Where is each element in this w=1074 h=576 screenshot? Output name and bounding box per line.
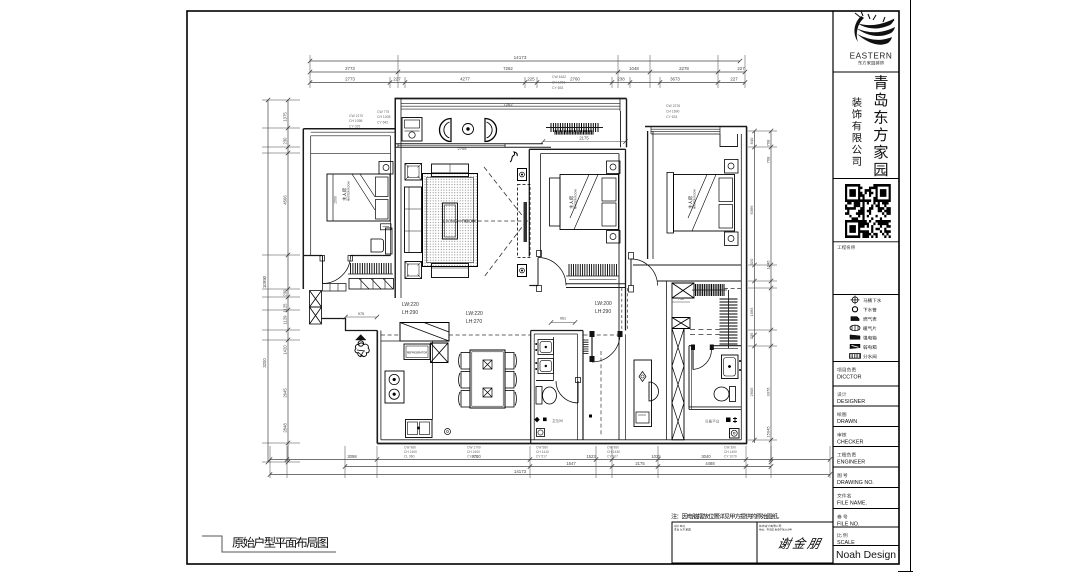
svg-text:14173: 14173 <box>514 469 527 474</box>
svg-text:CY 517: CY 517 <box>536 455 547 459</box>
svg-text:4566: 4566 <box>283 195 288 205</box>
svg-text:LH:270: LH:270 <box>466 319 482 325</box>
svg-text:3376: 3376 <box>766 387 771 397</box>
svg-text:2175: 2175 <box>635 461 645 466</box>
svg-text:LH:290: LH:290 <box>595 309 611 315</box>
svg-text:230: 230 <box>283 137 288 145</box>
svg-text:225: 225 <box>527 77 535 82</box>
svg-text:DRAWING NO.: DRAWING NO. <box>837 480 874 486</box>
svg-text:227: 227 <box>393 77 401 82</box>
svg-text:335: 335 <box>749 332 754 339</box>
svg-text:1565: 1565 <box>749 307 754 317</box>
svg-text:DESIGNER: DESIGNER <box>837 399 865 405</box>
svg-text:CW 390: CW 390 <box>724 446 736 450</box>
svg-text:14173: 14173 <box>514 55 527 60</box>
svg-text:238: 238 <box>617 77 625 82</box>
svg-text:LW:220: LW:220 <box>466 311 483 317</box>
svg-text:1420: 1420 <box>283 345 288 355</box>
svg-text:CH 1430: CH 1430 <box>607 450 620 454</box>
svg-text:MASTER ROOM: MASTER ROOM <box>574 189 578 209</box>
svg-text:CH 2400: CH 2400 <box>467 450 480 454</box>
svg-text:10990: 10990 <box>262 275 267 288</box>
svg-text:REFRIGERATOR: REFRIGERATOR <box>407 351 427 355</box>
svg-text:ENGINEER: ENGINEER <box>837 460 865 466</box>
svg-text:CH 1008: CH 1008 <box>377 115 390 119</box>
svg-text:1125: 1125 <box>283 303 288 313</box>
svg-text:4277: 4277 <box>460 77 470 82</box>
svg-text:LIVING: LIVING <box>443 219 458 224</box>
svg-text:230: 230 <box>283 289 288 297</box>
svg-text:227: 227 <box>730 77 738 82</box>
svg-text:CHECKER: CHECKER <box>837 440 863 446</box>
svg-text:1375: 1375 <box>283 112 288 122</box>
svg-text:CW 980: CW 980 <box>404 446 416 450</box>
svg-text:SCALE: SCALE <box>837 540 855 546</box>
svg-text:1523: 1523 <box>586 454 596 459</box>
svg-text:CW 580: CW 580 <box>536 446 548 450</box>
svg-text:DICCTOR: DICCTOR <box>837 375 862 381</box>
svg-text:1129: 1129 <box>283 315 288 325</box>
svg-text:FILE NAME.: FILE NAME. <box>837 501 867 507</box>
svg-text:2705: 2705 <box>458 146 468 151</box>
svg-text:2848: 2848 <box>283 423 288 433</box>
svg-text:640: 640 <box>749 137 754 144</box>
svg-text:768: 768 <box>766 156 771 163</box>
svg-text:CW 1700: CW 1700 <box>467 446 481 450</box>
svg-text:FILE NO.: FILE NO. <box>837 522 859 528</box>
svg-text:961: 961 <box>560 317 566 321</box>
svg-text:2605: 2605 <box>749 387 754 397</box>
svg-text:768: 768 <box>766 139 771 146</box>
svg-text:2773: 2773 <box>345 77 355 82</box>
svg-text:CY 920: CY 920 <box>467 455 478 459</box>
svg-text:1025: 1025 <box>651 454 661 459</box>
svg-text:3200: 3200 <box>262 358 267 368</box>
svg-text:CW 6162: CW 6162 <box>552 75 566 79</box>
svg-text:CY 1070: CY 1070 <box>724 455 737 459</box>
svg-text:1048: 1048 <box>629 66 639 71</box>
svg-text:2278: 2278 <box>679 66 689 71</box>
svg-text:2645: 2645 <box>283 388 288 398</box>
svg-text:CY 025: CY 025 <box>349 124 360 128</box>
svg-text:1046: 1046 <box>766 260 771 270</box>
svg-text:CY 642: CY 642 <box>377 120 388 124</box>
svg-text:LH:290: LH:290 <box>402 310 418 316</box>
svg-text:3673: 3673 <box>670 77 680 82</box>
svg-text:CW 980: CW 980 <box>607 446 619 450</box>
svg-text:CW 2170: CW 2170 <box>349 114 363 118</box>
svg-text:DRAWN: DRAWN <box>837 419 857 425</box>
svg-text:750: 750 <box>678 297 684 301</box>
svg-text:3040: 3040 <box>701 454 711 459</box>
svg-text:CH 1400: CH 1400 <box>404 450 417 454</box>
svg-text:7262: 7262 <box>503 66 513 71</box>
svg-text:6366: 6366 <box>749 205 754 215</box>
svg-text:227: 227 <box>737 66 745 71</box>
svg-text:MASTER ROOM: MASTER ROOM <box>347 181 351 201</box>
svg-text:CH 1400: CH 1400 <box>724 450 737 454</box>
svg-text:3098: 3098 <box>347 454 357 459</box>
svg-text:CH 1091: CH 1091 <box>552 81 565 85</box>
svg-text:CW 775: CW 775 <box>377 110 389 114</box>
svg-text:1547: 1547 <box>566 461 576 466</box>
svg-text:CY 653: CY 653 <box>552 86 563 90</box>
svg-text:EASTERN: EASTERN <box>850 52 893 61</box>
svg-text:2175: 2175 <box>579 136 589 141</box>
svg-text:CH 1690: CH 1690 <box>666 110 679 114</box>
svg-text:7262: 7262 <box>503 102 513 107</box>
svg-text:LW:220: LW:220 <box>402 302 419 308</box>
svg-text:4488: 4488 <box>705 461 715 466</box>
svg-text:CH 1410: CH 1410 <box>536 450 549 454</box>
svg-text:Noah Design: Noah Design <box>836 550 896 561</box>
svg-text:15045: 15045 <box>766 426 771 438</box>
svg-text:CY 633: CY 633 <box>666 115 677 119</box>
svg-text:LW:200: LW:200 <box>595 301 612 307</box>
svg-text:1500: 1500 <box>334 196 338 204</box>
svg-text:CW 2276: CW 2276 <box>666 104 680 108</box>
svg-text:975: 975 <box>358 312 364 316</box>
svg-text:CY 907: CY 907 <box>607 455 618 459</box>
svg-text:MASTER ROOM: MASTER ROOM <box>693 189 697 209</box>
svg-text:2773: 2773 <box>345 66 355 71</box>
svg-text:CL 960: CL 960 <box>404 455 415 459</box>
svg-text:2760: 2760 <box>570 77 580 82</box>
svg-text:320: 320 <box>749 258 754 265</box>
svg-text:CH 1098: CH 1098 <box>349 119 362 123</box>
